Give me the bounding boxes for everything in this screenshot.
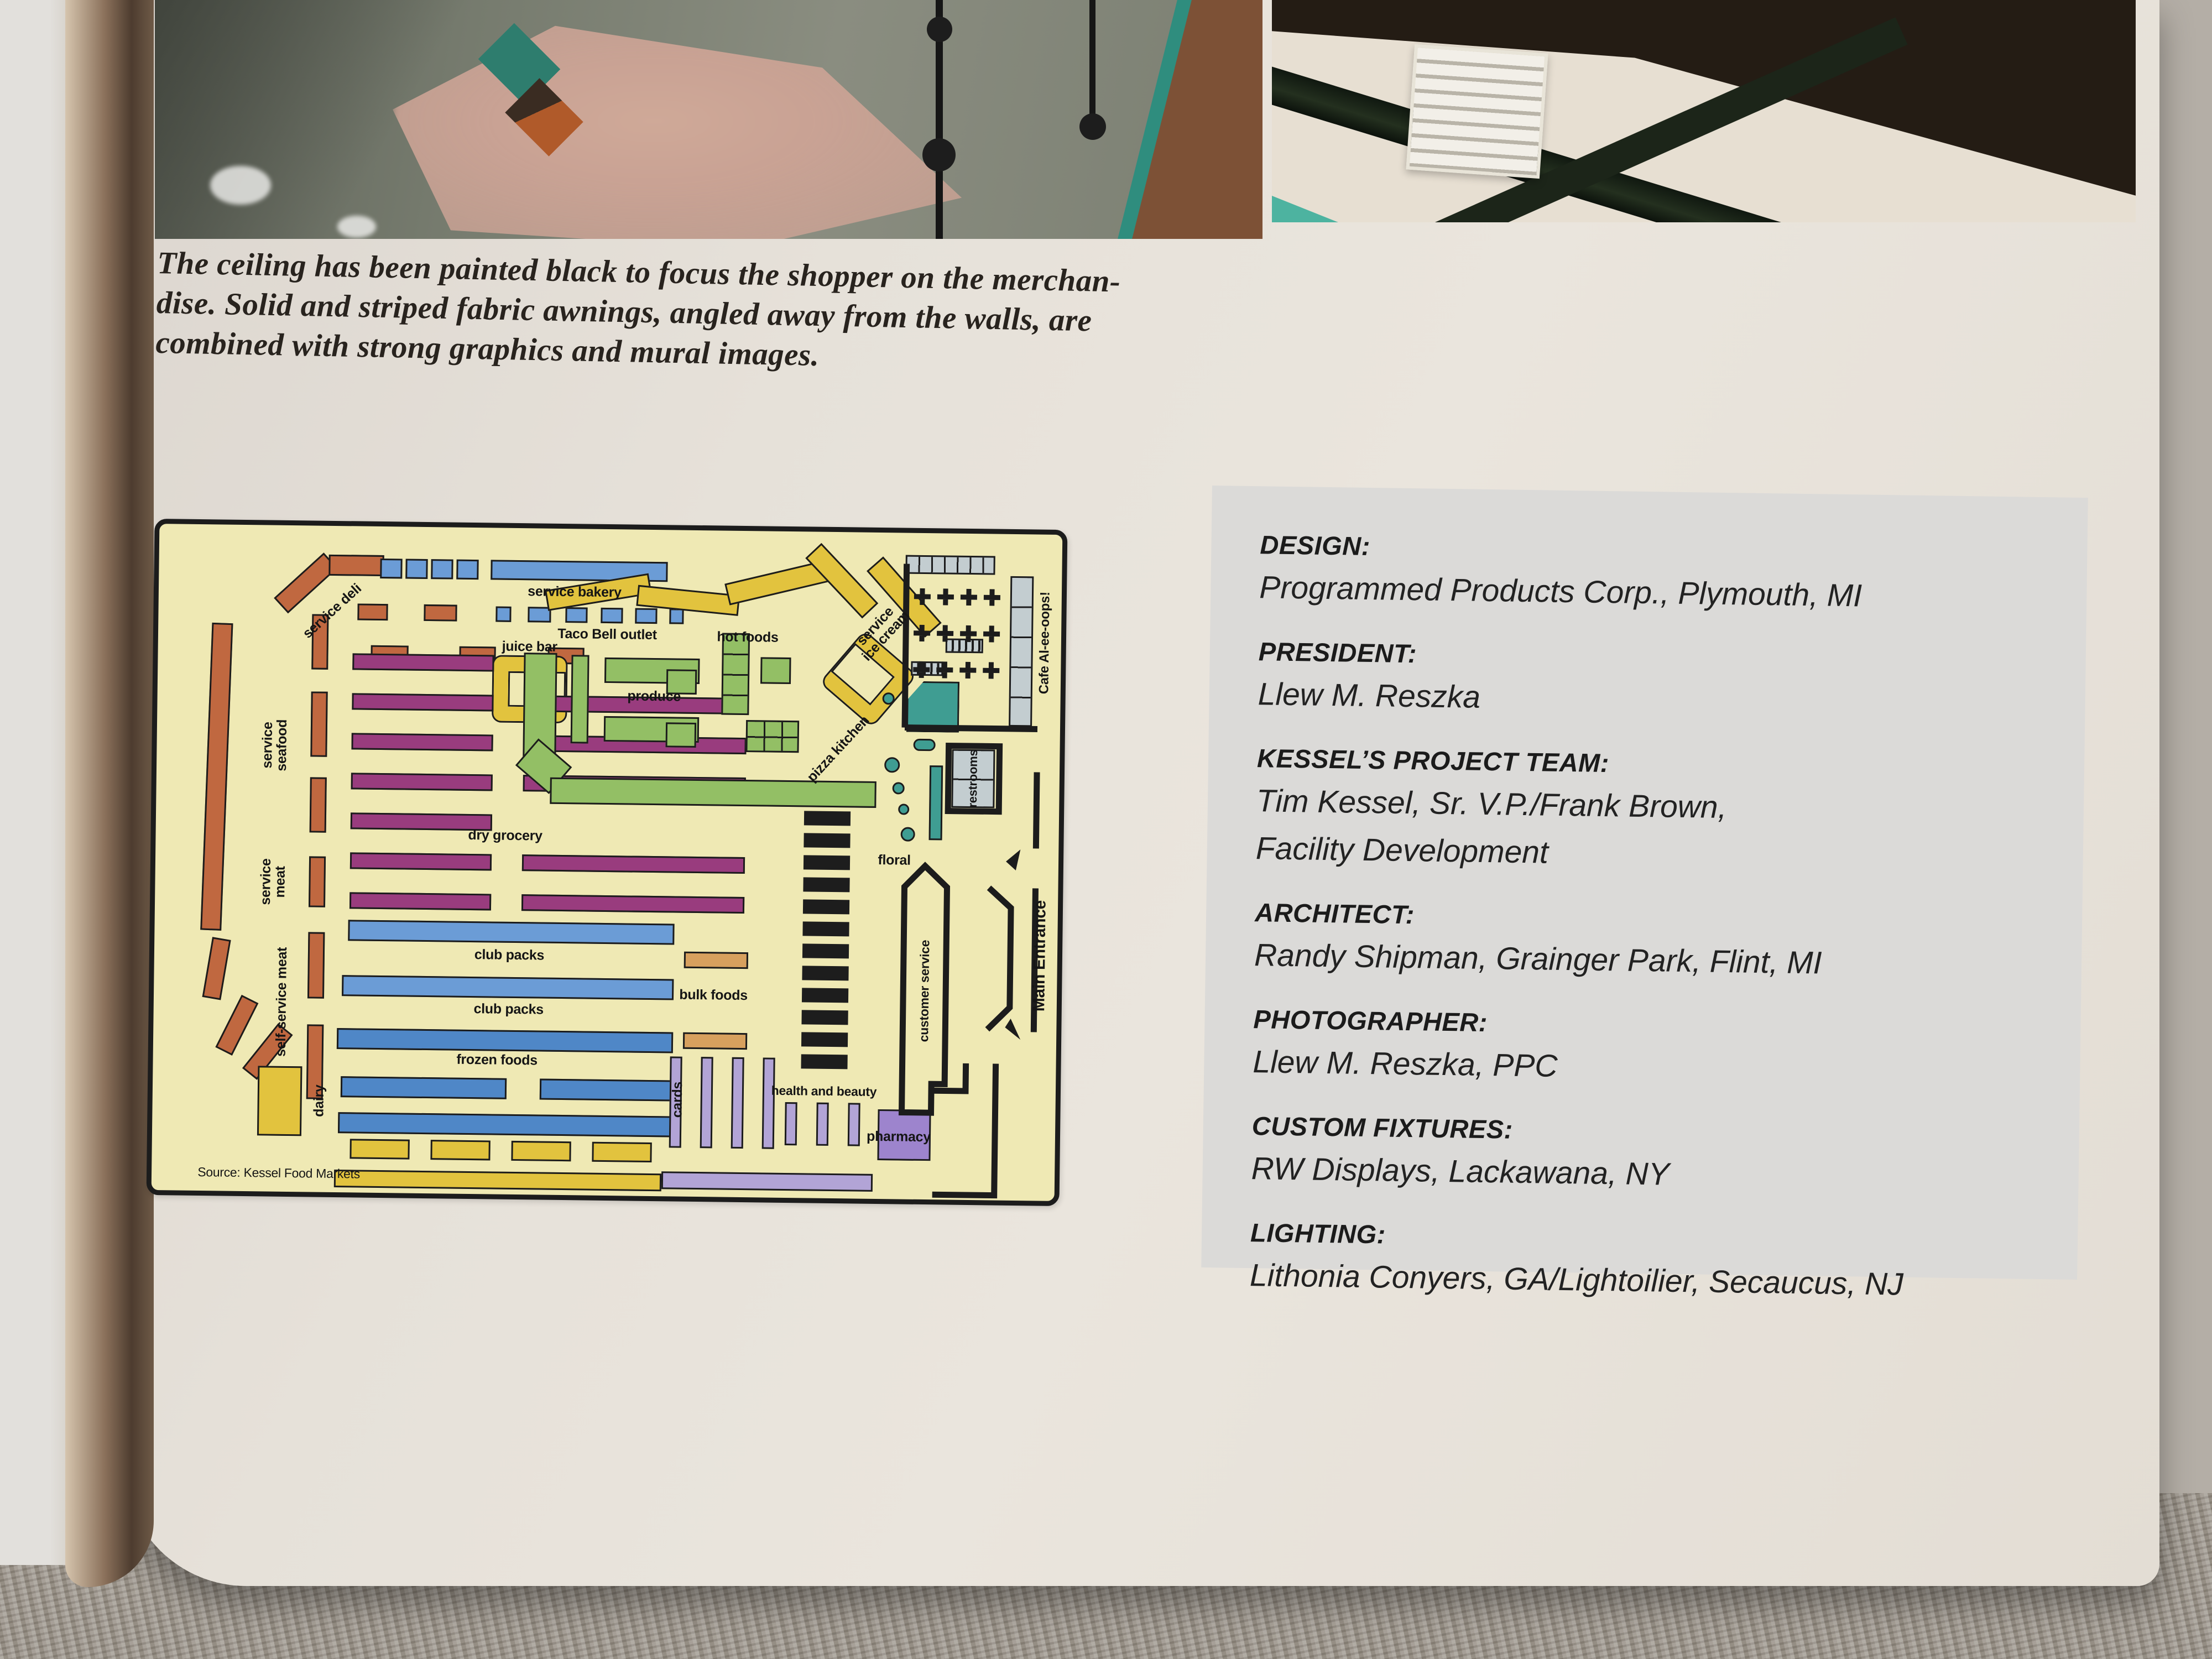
floor-highlight (210, 166, 271, 205)
plan-label-floral: floral (878, 853, 911, 868)
wall-segment (905, 728, 1037, 729)
credit-label: KESSEL’S PROJECT TEAM: (1257, 743, 2052, 784)
cafe-table-icon (960, 625, 977, 642)
plan-label-service-seafood: service seafood (260, 719, 289, 771)
plan-label-service-bakery: service bakery (528, 584, 622, 599)
entrance-arrow-icon (1006, 849, 1020, 870)
credit-value: Facility Development (1255, 828, 2050, 879)
cafe-table-icon (913, 661, 930, 678)
floor-highlight (337, 216, 376, 238)
plan-label-hot-foods: hot foods (717, 629, 778, 644)
plan-label-dry-grocery: dry grocery (468, 828, 542, 843)
plan-label-restrooms: restrooms (967, 749, 980, 807)
plan-label-cards: cards (670, 1082, 685, 1118)
credit-value: Tim Kessel, Sr. V.P./Frank Brown, (1256, 781, 2051, 832)
plan-label-juice-bar: juice bar (502, 639, 557, 654)
book-page-edge (65, 0, 154, 1587)
store-interior-photo (155, 0, 1262, 239)
credit-value: Llew M. Reszka, PPC (1253, 1042, 2047, 1093)
credit-label: PRESIDENT: (1258, 636, 2053, 677)
cafe-table-icon (937, 588, 954, 605)
stanchion-ball (927, 17, 952, 42)
credit-value: Programmed Products Corp., Plymouth, MI (1259, 567, 2054, 618)
cafe-table-icon (914, 625, 930, 641)
plan-label-main-entrance: Main Entrance (1030, 900, 1049, 1012)
stanchion-ball (922, 138, 956, 171)
wall-segment (987, 888, 1011, 1029)
cafe-table-icon (983, 625, 1000, 642)
plan-label-club-packs: club packs (474, 947, 545, 963)
project-credits-panel: DESIGN:Programmed Products Corp., Plymou… (1201, 486, 2088, 1280)
credit-label: CUSTOM FIXTURES: (1251, 1110, 2046, 1152)
plan-label-produce: produce (627, 688, 681, 703)
stanchion-ball (1079, 113, 1106, 140)
photo-shadow (155, 0, 465, 239)
plan-label-source-kessel-food-markets: Source: Kessel Food Markets (197, 1166, 360, 1181)
cafe-table-icon (984, 589, 1000, 606)
cafe-table-icon (914, 588, 931, 605)
teal-striped-walkway (1118, 0, 1262, 239)
glossy-floor-reflection (393, 17, 973, 239)
plan-label-frozen-foods: frozen foods (456, 1052, 538, 1068)
credit-label: DESIGN: (1260, 529, 2054, 571)
plan-label-self-service-meat: self-service meat (274, 947, 289, 1057)
floor-plan-walls (152, 524, 1063, 1201)
plan-label-cafe-al-ee-oops: Cafe Al-ee-oops! (1037, 592, 1052, 694)
cafe-table-icon (937, 625, 953, 641)
plan-label-health-and-beauty: health and beauty (771, 1084, 877, 1099)
teal-accent (1272, 182, 1349, 222)
credit-label: PHOTOGRAPHER: (1253, 1004, 2048, 1045)
plan-label-taco-bell-outlet: Taco Bell outlet (557, 627, 657, 642)
credit-value: Llew M. Reszka (1258, 674, 2052, 725)
plan-label-pharmacy: pharmacy (867, 1129, 931, 1144)
plan-label-club-packs: club packs (473, 1001, 544, 1017)
wall-vent-grille (1406, 44, 1548, 179)
cafe-table-icon (961, 589, 977, 606)
credit-label: ARCHITECT: (1255, 897, 2049, 938)
cafe-table-icon (983, 662, 999, 679)
plan-label-service-meat: service meat (258, 858, 288, 905)
store-wall-photo (1272, 0, 2136, 222)
cafe-table-icon (959, 662, 976, 679)
entrance-arrow-icon (1005, 1019, 1020, 1040)
wall-segment (905, 564, 907, 728)
store-floor-plan: service bakeryservice deliservice seafoo… (147, 519, 1068, 1206)
credit-value: RW Displays, Lackawana, NY (1251, 1149, 2046, 1199)
credit-value: Randy Shipman, Grainger Park, Flint, MI (1254, 935, 2049, 986)
cafe-table-icon (936, 661, 953, 678)
plan-label-dairy: dairy (311, 1084, 326, 1117)
stanchion-post (1089, 0, 1095, 127)
plan-label-customer-service: customer service (917, 940, 932, 1042)
credit-label: LIGHTING: (1250, 1217, 2045, 1259)
wall-segment (1036, 772, 1037, 848)
plan-label-bulk-foods: bulk foods (679, 988, 748, 1003)
